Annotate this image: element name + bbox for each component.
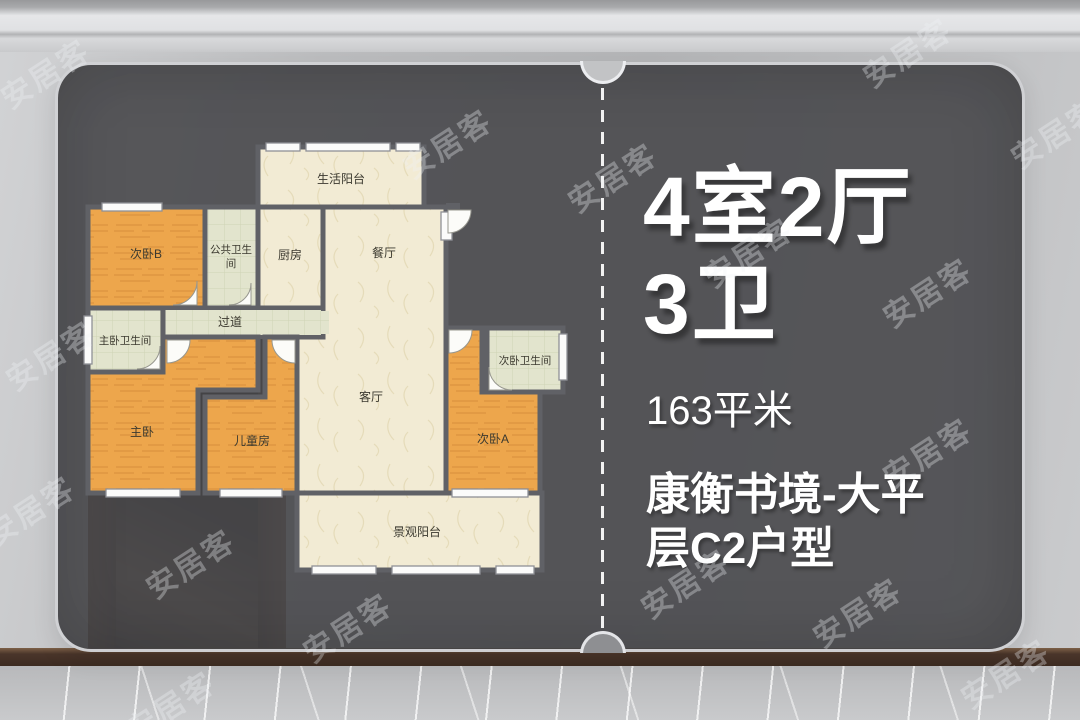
estate-name-line2: 层C2户型 xyxy=(646,512,834,576)
tile-floor xyxy=(0,666,1080,720)
ticket-notch-top xyxy=(580,61,626,85)
listing-image: 生活阳台 次卧B 公共卫生 间 厨房 餐厅 客厅 过道 主卧卫生间 主卧 儿童房… xyxy=(0,0,1080,720)
ticket-notch-bottom xyxy=(580,629,626,653)
ceiling-molding xyxy=(0,0,1080,52)
layout-title-line2: 3卫 xyxy=(643,237,778,358)
dashed-divider xyxy=(601,88,604,628)
area-text: 163平米 xyxy=(646,378,793,436)
